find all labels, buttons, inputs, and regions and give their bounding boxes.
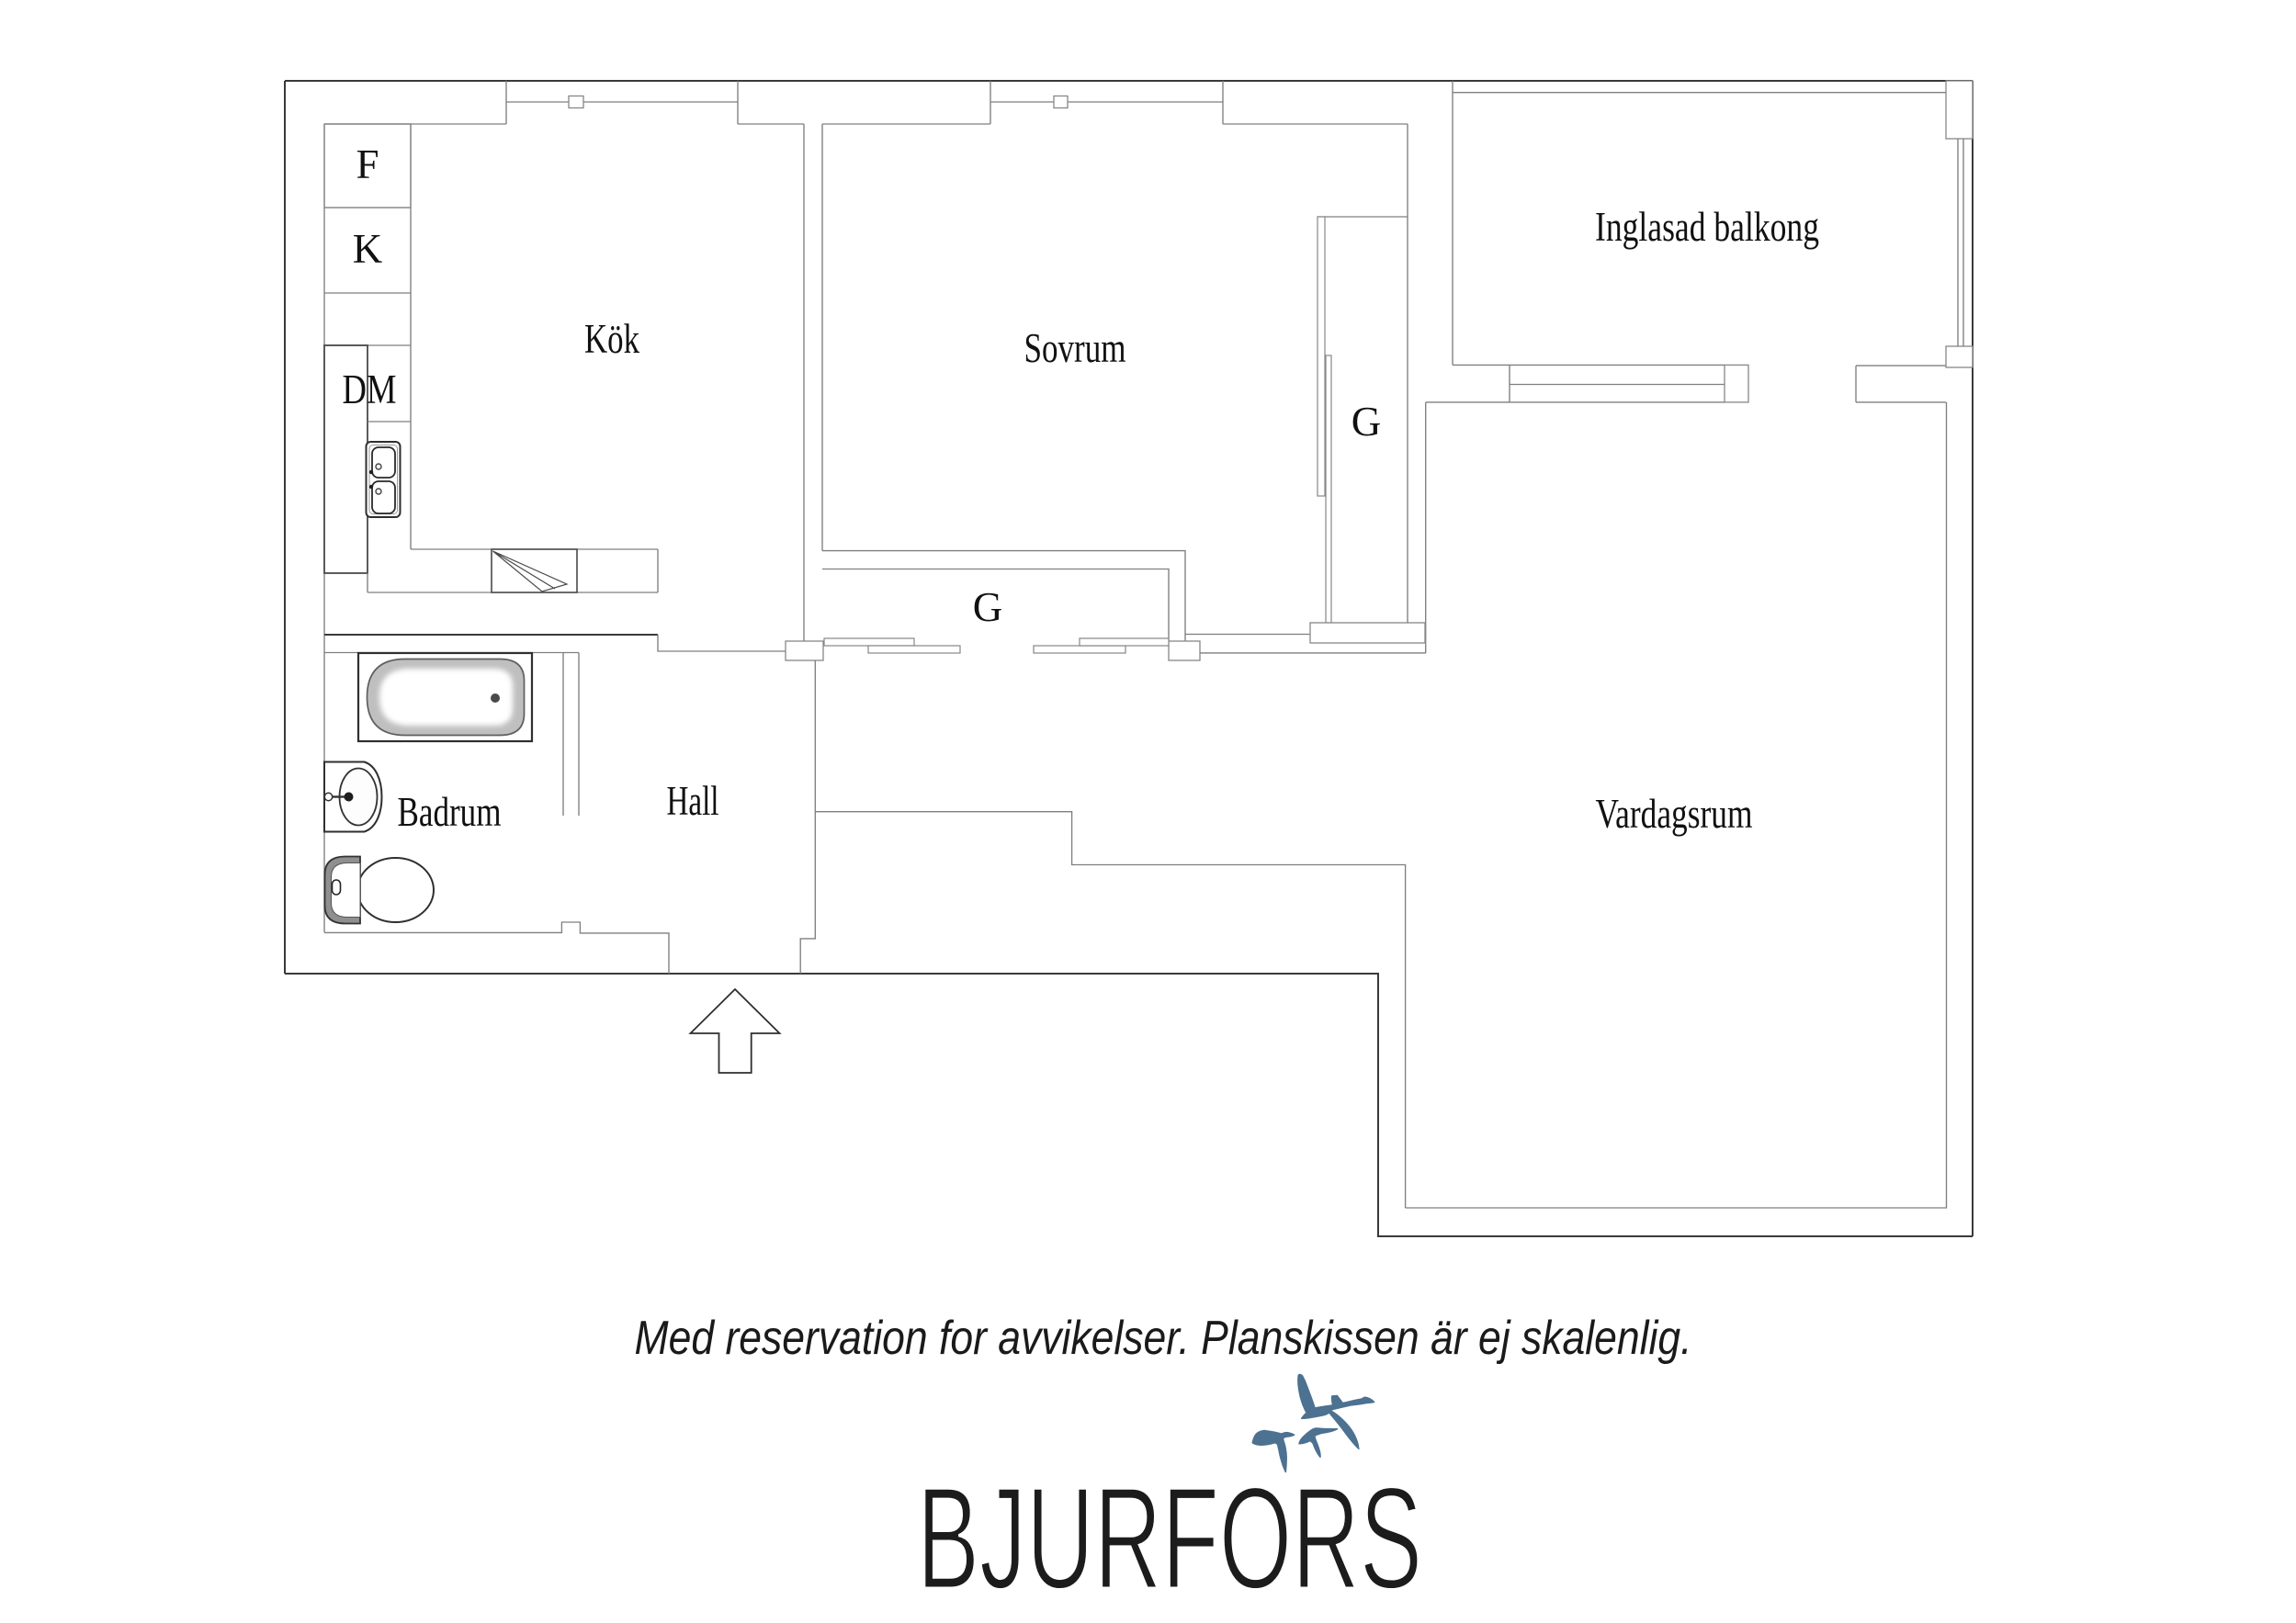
svg-text:Med reservation for avvikelser: Med reservation for avvikelser. Planskis… [635,1312,1692,1365]
svg-text:Vardagsrum: Vardagsrum [1596,791,1753,837]
svg-text:DM: DM [343,366,397,412]
svg-text:F: F [356,141,379,187]
svg-text:K: K [353,226,383,272]
svg-text:G: G [1352,399,1382,445]
svg-text:Inglasad balkong: Inglasad balkong [1595,204,1819,250]
svg-text:Kök: Kök [584,316,639,362]
svg-text:Hall: Hall [667,778,719,824]
svg-text:Badrum: Badrum [398,789,502,835]
svg-text:BJURFORS: BJURFORS [917,1458,1422,1619]
svg-text:G: G [973,584,1003,630]
svg-text:Sovrum: Sovrum [1024,325,1126,371]
